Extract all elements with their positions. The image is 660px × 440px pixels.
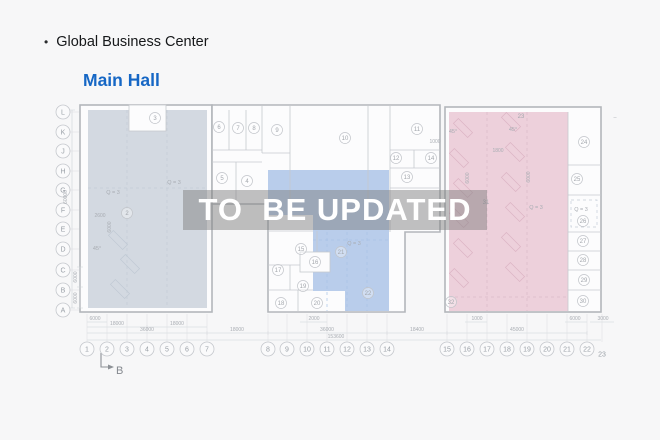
room-number: 23 (518, 114, 525, 120)
grid-column-label: 10 (303, 347, 311, 354)
grid-row-label: A (61, 307, 66, 314)
grid-row-label: H (60, 168, 65, 175)
grid-column-label: 3 (125, 347, 129, 354)
section-marker: B (101, 353, 123, 377)
annotation-text: 45° (509, 127, 517, 133)
dimension-label: 6000 (73, 292, 79, 303)
dimension-label: 153600 (328, 334, 345, 340)
dimension-label: 6000 (569, 316, 580, 322)
annotation-text: Q = 3 (347, 241, 361, 247)
grid-column-label: 12 (343, 347, 351, 354)
grid-column-label: 20 (543, 347, 551, 354)
room-number: 21 (338, 250, 345, 256)
room-number: 28 (580, 258, 587, 264)
annotation-text: Q = 3 (167, 180, 181, 186)
annotation-text: Q = 3 (529, 205, 543, 211)
dimension-label: 6000 (89, 316, 100, 322)
dimension-label: 18000 (230, 327, 244, 333)
room-number: 26 (580, 219, 587, 225)
grid-column-label: 18 (503, 347, 511, 354)
room-number: 13 (404, 175, 411, 181)
grid-column-label: 17 (483, 347, 491, 354)
room-number: 19 (300, 284, 307, 290)
watermark-banner: TO BE UPDATED (183, 190, 487, 230)
dimension-label: 6000 (107, 221, 113, 232)
annotation-text: – (613, 115, 617, 121)
grid-row-label: B (61, 287, 66, 294)
dimension-label: 45000 (510, 327, 524, 333)
grid-row-label: D (60, 246, 65, 253)
grid-column-label: 7 (205, 347, 209, 354)
room-number: 24 (581, 140, 588, 146)
grid-column-label: 5 (165, 347, 169, 354)
annotation-text: 45° (93, 246, 101, 252)
room-number: 29 (581, 278, 588, 284)
grid-column-label: 22 (583, 347, 591, 354)
room-number: 22 (365, 291, 372, 297)
room-number: 30 (580, 299, 587, 305)
grid-row-label: C (60, 267, 65, 274)
grid-row-label: K (61, 129, 66, 136)
annotation-text: 45° (449, 129, 457, 135)
room-number: 27 (580, 239, 587, 245)
grid-column-label: 2 (105, 347, 109, 354)
grid-column-label: 15 (443, 347, 451, 354)
room-number: 16 (312, 260, 319, 266)
dimension-label: 1800 (492, 148, 503, 154)
annotation-text: Q = 3 (106, 190, 120, 196)
dimension-label: 2000 (308, 316, 319, 322)
dimension-label: 60000 (63, 190, 69, 204)
dimension-label: 36000 (320, 327, 334, 333)
room-number: 14 (428, 156, 435, 162)
room-number: 15 (298, 247, 305, 253)
room-number: 20 (314, 301, 321, 307)
room-number: 25 (574, 177, 581, 183)
grid-column-label: 6 (185, 347, 189, 354)
dimension-label: 18000 (170, 321, 184, 327)
grid-column-label: 23 (598, 352, 606, 359)
grid-column-label: 19 (523, 347, 531, 354)
room-number: 17 (275, 268, 282, 274)
section-marker-label: B (116, 365, 123, 377)
dimension-label: 2600 (94, 213, 105, 219)
grid-column-label: 8 (266, 347, 270, 354)
grid-column-label: 13 (363, 347, 371, 354)
grid-column-label: 11 (323, 347, 330, 354)
dimension-label: 6000 (465, 172, 471, 183)
grid-row-label: E (61, 226, 66, 233)
dimension-label: 18000 (110, 321, 124, 327)
dimension-label: 1000 (429, 139, 440, 145)
room-number: 10 (342, 136, 349, 142)
annotation-text: Q = 3 (574, 207, 588, 213)
grid-column-label: 4 (145, 347, 149, 354)
dimension-label: 18400 (410, 327, 424, 333)
grid-column-label: 9 (285, 347, 289, 354)
room-number: 11 (414, 127, 421, 133)
dimension-label: 36000 (140, 327, 154, 333)
watermark-text: TO BE UPDATED (199, 192, 472, 228)
dimension-label: 3000 (597, 316, 608, 322)
grid-column-label: 21 (563, 347, 571, 354)
grid-column-label: 1 (85, 347, 89, 354)
room-number: 32 (448, 300, 455, 306)
grid-column-label: 14 (383, 347, 391, 354)
dimension-label: 6000 (526, 171, 532, 182)
grid-row-label: L (61, 109, 65, 116)
grid-row-label: F (61, 207, 65, 214)
grid-row-label: J (61, 148, 65, 155)
room-number: 18 (278, 301, 285, 307)
room-number: 12 (393, 156, 400, 162)
grid-column-label: 16 (463, 347, 471, 354)
dimension-label: 1000 (471, 316, 482, 322)
dimension-label: 6000 (73, 271, 79, 282)
